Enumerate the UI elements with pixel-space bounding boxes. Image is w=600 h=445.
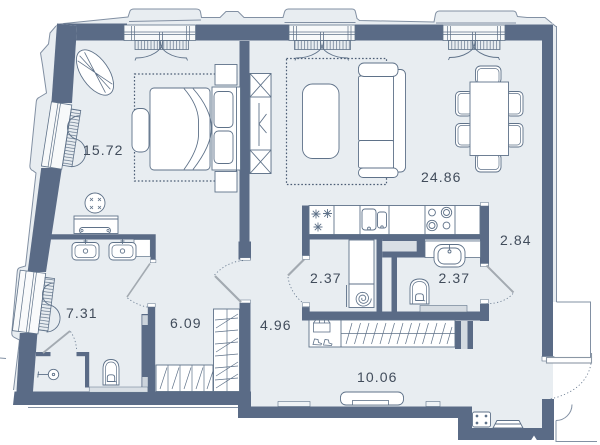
svg-text:2.84: 2.84 — [500, 232, 532, 248]
svg-text:10.06: 10.06 — [357, 369, 398, 385]
svg-text:7.31: 7.31 — [66, 305, 98, 321]
svg-text:4.96: 4.96 — [260, 317, 292, 333]
svg-text:2.37: 2.37 — [439, 270, 471, 286]
svg-text:24.86: 24.86 — [421, 169, 462, 185]
svg-text:15.72: 15.72 — [83, 142, 124, 158]
svg-text:2.37: 2.37 — [310, 270, 342, 286]
svg-text:6.09: 6.09 — [170, 315, 202, 331]
